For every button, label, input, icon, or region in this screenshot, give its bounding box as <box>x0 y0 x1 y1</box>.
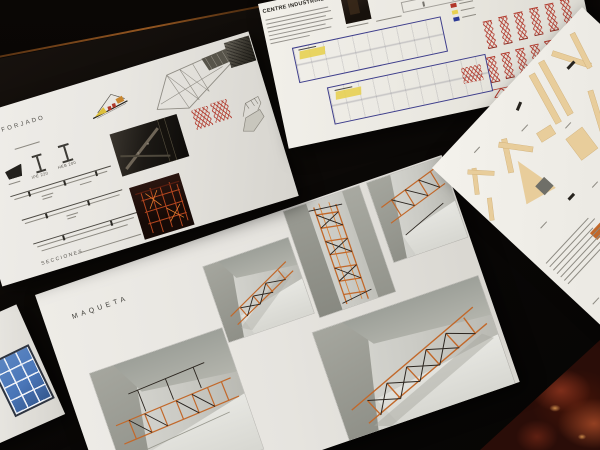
crosshatch-diagram <box>210 99 232 123</box>
micro-caption <box>9 181 21 186</box>
steel-members <box>110 114 190 177</box>
legend-color-chip-blue <box>453 16 460 21</box>
beam-label: HEB 200 <box>57 160 76 170</box>
legend-label-line <box>461 7 475 11</box>
piece-label-line <box>540 221 547 228</box>
exhibition-table-photo: MAQUETA <box>0 0 600 450</box>
red-plan-marks <box>461 64 484 84</box>
tick <box>422 2 425 7</box>
hanger-mark <box>110 221 113 226</box>
wood-piece <box>487 198 494 220</box>
beam-web <box>36 156 42 170</box>
annotation-lines <box>80 181 92 186</box>
photo-detail <box>347 0 360 15</box>
micro-caption <box>15 141 40 150</box>
paragraph-line <box>270 35 309 45</box>
hanger-mark <box>95 171 98 176</box>
piece-label-line <box>474 147 480 154</box>
gray-axon-drawing <box>230 91 270 136</box>
hanger-mark <box>28 191 31 196</box>
legend-color-chip-red <box>450 3 457 8</box>
hanger-mark <box>45 213 48 218</box>
wood-piece <box>588 90 600 137</box>
maqueta-label: MAQUETA <box>71 295 129 321</box>
spec-list-line <box>546 218 589 264</box>
legend-label-line <box>462 14 476 18</box>
wood-piece <box>566 127 598 160</box>
metal-piece <box>566 60 575 69</box>
wood-piece <box>529 73 561 124</box>
truss-elevation-strip <box>483 20 498 49</box>
hanger-mark <box>63 181 66 186</box>
truss-elevation-strip <box>501 52 515 79</box>
beam-label: IPE 220 <box>31 170 49 180</box>
annotation-lines <box>67 216 76 220</box>
hanger-mark <box>87 200 90 205</box>
crosshatch-diagram <box>191 106 213 130</box>
truss-elevation-strip <box>498 16 513 45</box>
wood-piece <box>537 125 556 142</box>
beam-web <box>63 146 69 160</box>
legend-color-chip-yellow <box>452 10 459 15</box>
piece-label-line <box>592 181 598 188</box>
steel-plate-symbol <box>4 164 25 181</box>
photo-caption-line <box>347 22 369 28</box>
forjado-label: FORJADO <box>1 115 46 134</box>
truss-elevation-strip <box>544 3 559 32</box>
piece-label-line <box>592 297 599 304</box>
piece-label-line <box>565 122 571 129</box>
truss-elevation-strip <box>513 11 528 40</box>
annotation-lines <box>42 196 52 200</box>
legend-label-line <box>459 0 473 4</box>
site-photo <box>340 0 371 24</box>
metal-piece <box>568 193 576 201</box>
model-truss-drawing <box>90 328 264 450</box>
steel-joint-photo <box>110 114 190 177</box>
truss-elevation-strip <box>529 7 544 36</box>
model-photo-wide-truss <box>90 328 264 450</box>
metal-piece <box>516 102 522 111</box>
hanger-mark <box>62 235 65 240</box>
piece-label-line <box>521 124 528 131</box>
section-drawing-color <box>85 86 133 125</box>
spec-list <box>546 212 600 290</box>
